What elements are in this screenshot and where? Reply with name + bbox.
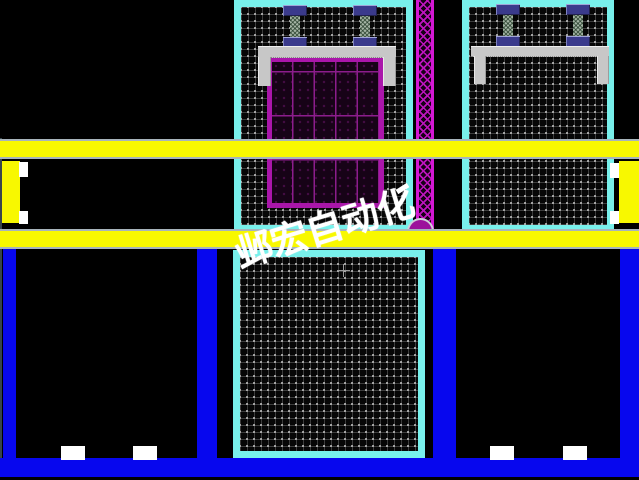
lattice-column: [416, 0, 434, 231]
top-right-station: [462, 0, 614, 232]
clamp-screw-stem: [573, 15, 583, 36]
bottom-center-station: [233, 250, 425, 458]
left-rail-fixture: [2, 161, 20, 223]
lift-bracket-left-arm: [474, 56, 486, 84]
lift-bracket-bar: [471, 46, 609, 57]
upper-yellow-rail: [0, 139, 639, 159]
clamp-screw-stem: [503, 15, 513, 36]
bin-foot: [563, 446, 587, 460]
clamp-icon: [283, 5, 307, 48]
clamp-top-cap: [496, 4, 520, 15]
lift-bracket-left-arm: [258, 57, 271, 86]
lift-bracket-right-arm: [383, 57, 396, 86]
base-frame-bottom-beam: [0, 458, 639, 477]
crosshair-cursor-icon: [337, 264, 350, 277]
clamp-top-cap: [566, 4, 590, 15]
clamp-icon: [353, 5, 377, 48]
lift-bracket-bar: [258, 46, 396, 58]
right-fixture-notch: [610, 163, 619, 178]
right-rail-fixture: [619, 161, 639, 223]
clamp-icon: [496, 4, 520, 47]
base-frame-right-post: [620, 248, 639, 477]
lift-bracket-right-arm: [597, 56, 609, 84]
clamp-screw-stem: [360, 16, 370, 37]
right-fixture-notch: [610, 211, 619, 224]
base-frame-divider: [433, 248, 456, 477]
base-frame-divider: [197, 248, 217, 477]
bin-foot: [133, 446, 157, 460]
left-fixture-notch: [19, 162, 28, 177]
clamp-screw-stem: [290, 16, 300, 37]
left-fixture-notch: [19, 211, 28, 224]
clamp-top-cap: [283, 5, 307, 16]
bin-foot: [61, 446, 85, 460]
pallet-grid: [267, 57, 384, 208]
bin-foot: [490, 446, 514, 460]
clamp-icon: [566, 4, 590, 47]
cad-viewport[interactable]: 邺宏自动化: [0, 0, 639, 480]
base-frame-left-post: [3, 248, 16, 477]
clamp-top-cap: [353, 5, 377, 16]
